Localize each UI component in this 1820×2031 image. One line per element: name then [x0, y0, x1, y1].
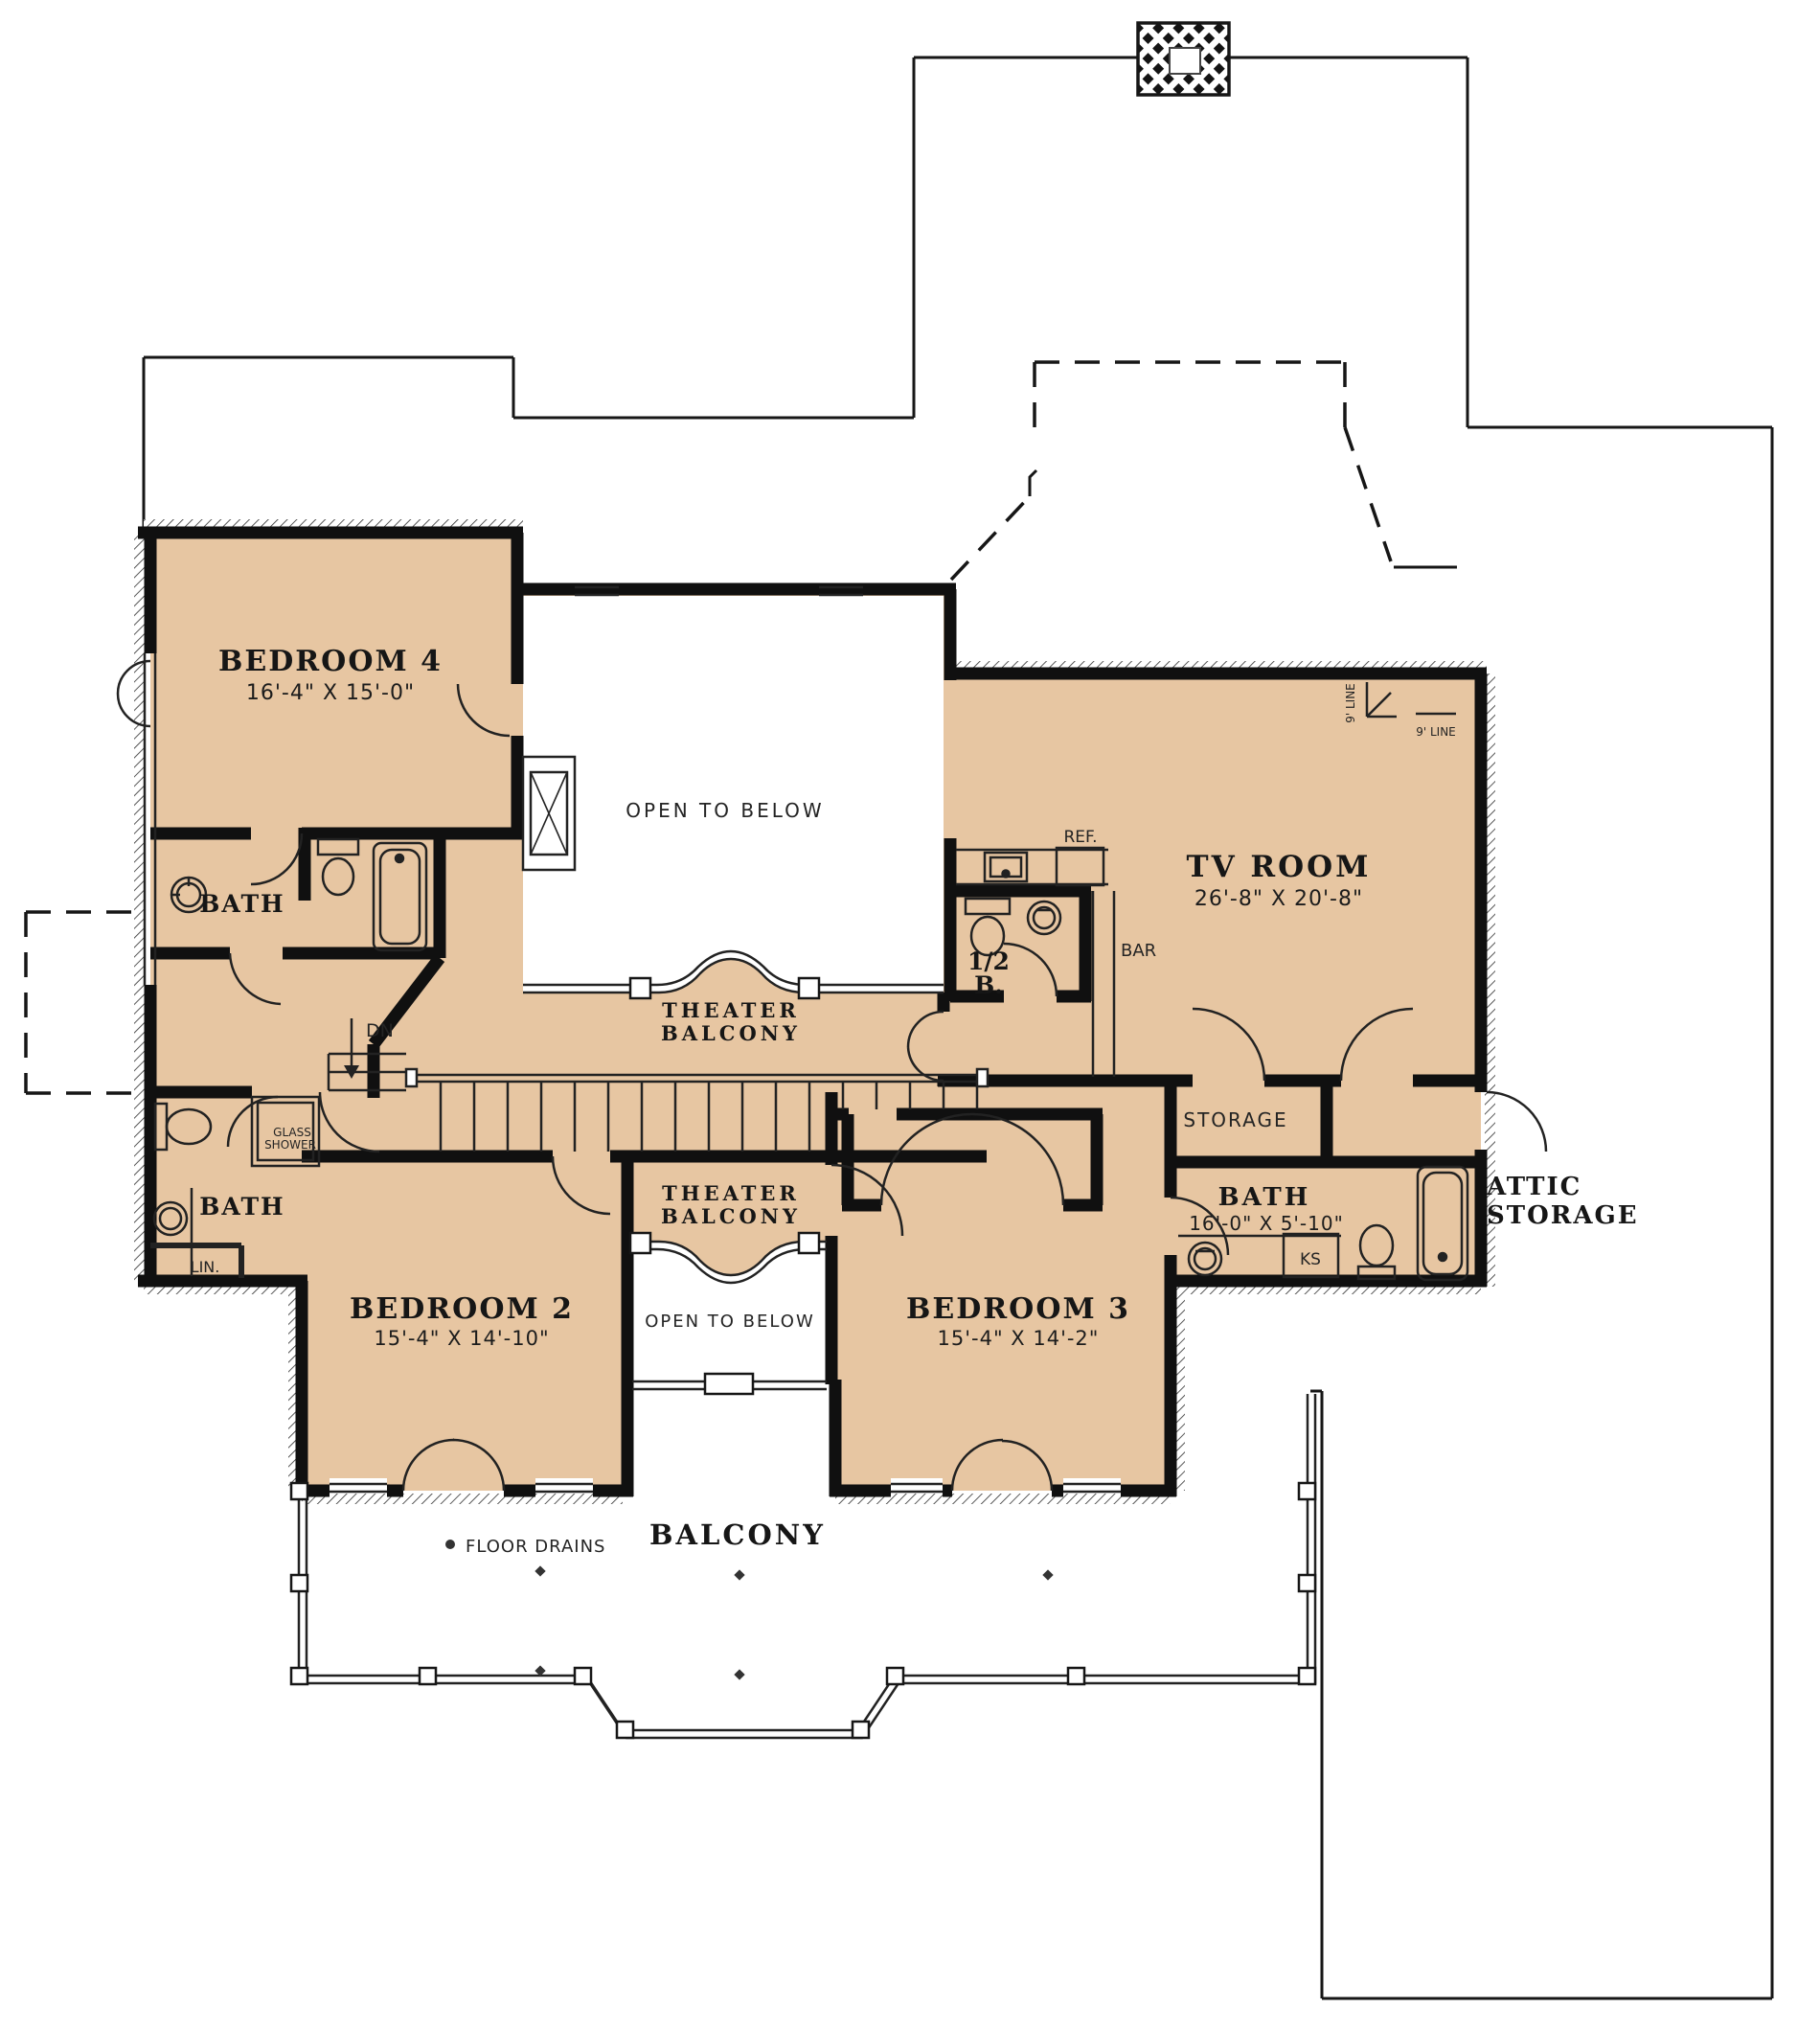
glass-shower-label-2: SHOWER: [264, 1138, 316, 1152]
fireplace: [523, 757, 575, 870]
open-to-below-upper-label: OPEN TO BELOW: [626, 799, 824, 822]
balcony-label: BALCONY: [649, 1518, 826, 1551]
bedroom-3-label: BEDROOM 3: [906, 1292, 1130, 1326]
storage-label: STORAGE: [1183, 1108, 1287, 1131]
bath-right-label: BATH: [1218, 1183, 1311, 1212]
half-bath-label-2: B.: [974, 971, 1003, 999]
floor-plan-page: BEDROOM 4 16'-4" X 15'-0" OPEN TO BELOW …: [0, 0, 1820, 2031]
ceiling-line-vertical-label: 9' LINE: [1344, 683, 1357, 723]
bar-label: BAR: [1121, 941, 1156, 961]
open-to-below-lower-label: OPEN TO BELOW: [645, 1312, 815, 1332]
attic-storage-label-2: STORAGE: [1487, 1201, 1639, 1230]
dn-label: DN: [366, 1020, 394, 1041]
tv-room-label: TV ROOM: [1187, 850, 1372, 884]
bedroom-4-dims: 16'-4" X 15'-0": [246, 681, 415, 705]
theater-balcony-upper-label-2: BALCONY: [661, 1021, 801, 1045]
open-to-below-upper-area: [523, 596, 944, 993]
lin-label: LIN.: [191, 1258, 220, 1276]
chimney: [1138, 23, 1229, 95]
bedroom-2-dims: 15'-4" X 14'-10": [374, 1327, 549, 1350]
floor-drains-bullet: [445, 1540, 455, 1549]
bedroom-2-label: BEDROOM 2: [350, 1292, 574, 1326]
floor-drains-label: FLOOR DRAINS: [466, 1537, 605, 1557]
tv-room-dims: 26'-8" X 20'-8": [1194, 887, 1363, 911]
bath-right-dims: 16'-0" X 5'-10": [1189, 1212, 1344, 1235]
ceiling-line-horizontal-label: 9' LINE: [1416, 725, 1456, 739]
ref-label: REF.: [1063, 828, 1097, 847]
bath-upper-left-label: BATH: [199, 890, 284, 918]
theater-balcony-lower-label-2: BALCONY: [661, 1204, 801, 1228]
ks-label: KS: [1300, 1250, 1321, 1269]
floor-plan-drawing: BEDROOM 4 16'-4" X 15'-0" OPEN TO BELOW …: [0, 0, 1820, 2031]
bedroom-4-label: BEDROOM 4: [218, 645, 443, 678]
theater-balcony-upper-label-1: THEATER: [662, 998, 800, 1022]
bath-lower-left-label: BATH: [199, 1193, 284, 1221]
theater-balcony-lower-label-1: THEATER: [662, 1181, 800, 1205]
bedroom-3-dims: 15'-4" X 14'-2": [938, 1327, 1100, 1350]
attic-storage-label-1: ATTIC: [1486, 1173, 1581, 1201]
glass-shower-label-1: GLASS: [273, 1126, 311, 1139]
